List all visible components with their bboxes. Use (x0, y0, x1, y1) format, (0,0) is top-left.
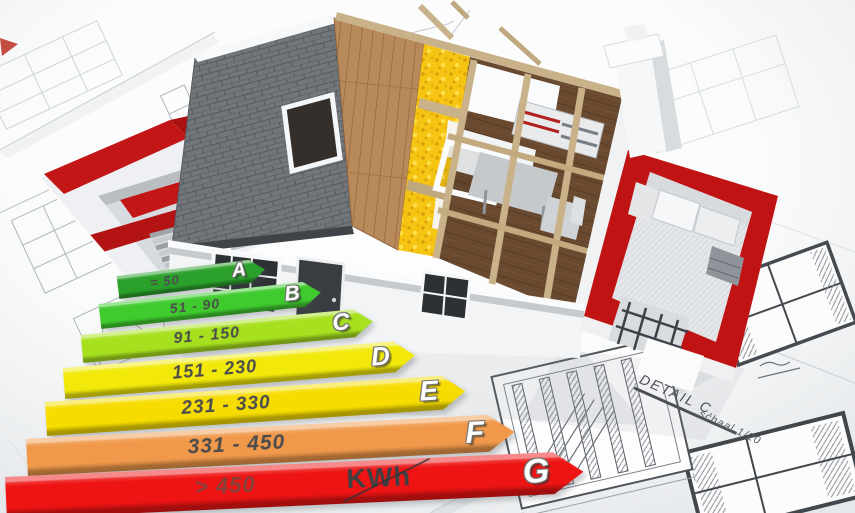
front-door (294, 258, 344, 334)
facade-window-right (420, 272, 470, 320)
roof-cutaway (172, 14, 472, 258)
facade-window-left (210, 252, 280, 314)
house-blueprint-illustration (0, 0, 855, 513)
door-handle (332, 298, 336, 302)
scene-3d-house-energy-rating: DETAIL C. schaal 1/20 = 50 A 51 - 90 B 9… (0, 0, 855, 513)
skylight-window (284, 95, 340, 171)
